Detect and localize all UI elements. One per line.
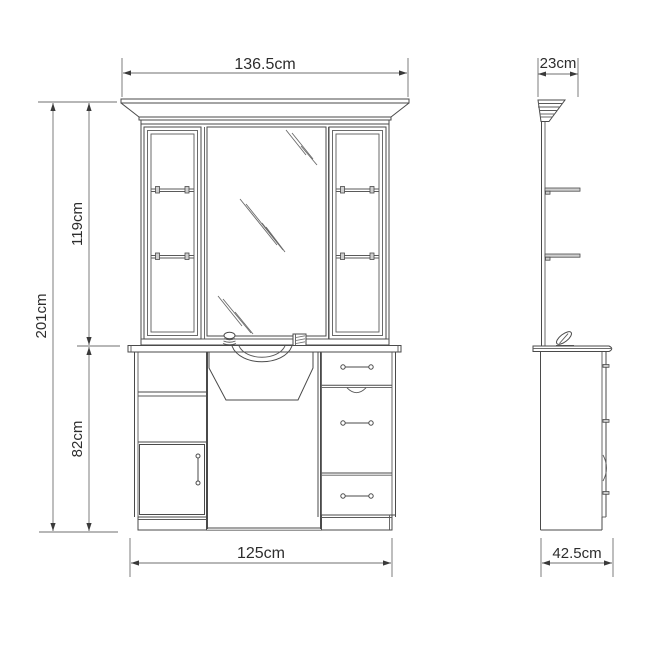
sink-cutout (209, 346, 313, 400)
technical-drawing-canvas: 136.5cm 23cm 201cm 119cm (0, 0, 650, 650)
front-view (121, 99, 409, 530)
crown-molding-front (121, 99, 409, 124)
dim-label-base-width: 125cm (237, 545, 285, 562)
drawer-handle-1 (341, 365, 373, 369)
dim-label-front-width: 136.5cm (234, 56, 295, 73)
side-cabinet (541, 352, 610, 531)
dim-label-total-height: 201cm (33, 293, 50, 338)
drawer-cup-pull (347, 388, 366, 393)
drawer-unit (318, 352, 396, 530)
right-plinth (322, 515, 393, 530)
dim-label-base-depth: 42.5cm (552, 545, 601, 562)
countertop-side (533, 346, 612, 352)
faucet-icon (555, 329, 574, 346)
drawer-handle-3 (341, 494, 373, 498)
drawing-svg: 136.5cm 23cm 201cm 119cm (0, 0, 650, 650)
cabinet-door (140, 445, 205, 515)
dim-label-crown-depth: 23cm (540, 55, 577, 72)
dimensions: 136.5cm 23cm 201cm 119cm (33, 55, 613, 577)
mirror-hatch-lines (218, 130, 317, 334)
glass-shelf-right-2 (336, 253, 379, 260)
left-lower-cabinet (135, 352, 207, 530)
side-shelf-2 (545, 254, 580, 260)
glass-shelf-left-1 (151, 187, 194, 194)
dim-total-height: 201cm (33, 102, 118, 532)
door-handle (196, 454, 200, 485)
dome-knob-icon (222, 332, 237, 345)
left-plinth (138, 517, 207, 530)
upper-cabinet-frame (141, 124, 389, 345)
dim-base-depth: 42.5cm (541, 538, 613, 577)
side-view (533, 100, 612, 530)
dim-upper-height: 119cm (69, 103, 120, 346)
crown-molding-side (538, 100, 565, 122)
right-display-cabinet (329, 127, 386, 339)
box-icon (293, 334, 306, 346)
glass-shelf-right-1 (336, 187, 379, 194)
dim-front-width: 136.5cm (122, 56, 408, 97)
dim-crown-depth: 23cm (538, 55, 578, 97)
dim-lower-height: 82cm (69, 347, 92, 531)
glass-shelf-left-2 (151, 253, 194, 260)
side-shelf-1 (545, 188, 580, 194)
side-back-panel (542, 122, 546, 347)
dim-base-width: 125cm (130, 538, 392, 577)
center-panel (207, 352, 322, 530)
mirror (205, 127, 329, 339)
dim-label-upper-height: 119cm (69, 202, 86, 246)
countertop-front (128, 346, 401, 353)
open-shelves (138, 392, 207, 442)
dim-label-lower-height: 82cm (69, 421, 86, 458)
drawer-handle-2 (341, 421, 373, 425)
left-display-cabinet (144, 127, 201, 339)
